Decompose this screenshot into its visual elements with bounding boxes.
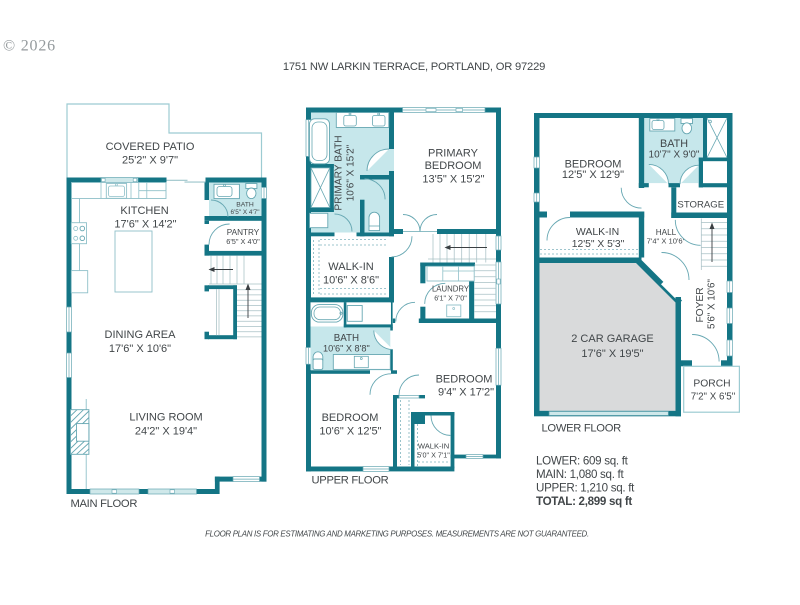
svg-text:BATH: BATH [236,202,254,209]
svg-text:TOTAL: 2,899 sq ft: TOTAL: 2,899 sq ft [536,495,632,508]
svg-text:WALK-IN: WALK-IN [418,442,449,451]
svg-text:10'6" X 8'6": 10'6" X 8'6" [323,275,379,287]
svg-text:LAUNDRY: LAUNDRY [432,285,470,294]
svg-text:12'5" X 5'3": 12'5" X 5'3" [572,239,625,250]
svg-text:FLOOR PLAN IS FOR ESTIMATING A: FLOOR PLAN IS FOR ESTIMATING AND MARKETI… [205,530,589,539]
svg-text:PANTRY: PANTRY [227,228,260,237]
svg-text:FOYER: FOYER [695,287,706,322]
svg-text:MAIN: 1,080 sq. ft: MAIN: 1,080 sq. ft [536,468,624,481]
svg-text:BEDROOM: BEDROOM [425,160,482,172]
svg-text:9'4" X 17'2": 9'4" X 17'2" [438,387,494,399]
svg-text:PORCH: PORCH [693,379,730,390]
svg-text:LOWER FLOOR: LOWER FLOOR [542,423,622,435]
svg-text:© 2026: © 2026 [3,38,56,55]
svg-text:6'5" X 4'0": 6'5" X 4'0" [226,237,260,246]
svg-text:BATH: BATH [334,333,359,344]
svg-text:5'6" X 10'6": 5'6" X 10'6" [707,279,718,329]
svg-text:25'2" X 9'7": 25'2" X 9'7" [122,155,178,167]
svg-text:5'0" X 7'1": 5'0" X 7'1" [417,451,450,460]
svg-text:10'6" X 12'5": 10'6" X 12'5" [319,426,381,438]
svg-text:MAIN FLOOR: MAIN FLOOR [71,498,138,510]
svg-text:PRIMARY: PRIMARY [428,148,479,160]
svg-text:10'6" X 8'8": 10'6" X 8'8" [323,344,370,354]
svg-text:6'5" X 4'7": 6'5" X 4'7" [230,209,259,216]
svg-text:12'5" X 12'9": 12'5" X 12'9" [562,169,624,181]
svg-text:WALK-IN: WALK-IN [576,226,619,238]
svg-text:WALK-IN: WALK-IN [328,261,373,273]
svg-text:PRIMARY BATH: PRIMARY BATH [334,135,345,210]
svg-text:7'4" X 10'6": 7'4" X 10'6" [647,237,686,246]
svg-text:1751 NW LARKIN TERRACE, PORTLA: 1751 NW LARKIN TERRACE, PORTLAND, OR 972… [283,61,545,73]
svg-text:17'6" X 10'6": 17'6" X 10'6" [109,343,171,355]
svg-text:24'2" X 19'4": 24'2" X 19'4" [135,426,197,438]
svg-text:UPPER: 1,210 sq. ft: UPPER: 1,210 sq. ft [536,481,635,494]
svg-text:17'6" X 14'2": 17'6" X 14'2" [114,219,176,231]
svg-text:COVERED PATIO: COVERED PATIO [106,141,195,153]
svg-text:BATH: BATH [660,138,688,150]
svg-text:LIVING ROOM: LIVING ROOM [129,412,202,424]
svg-text:7'2" X 6'5": 7'2" X 6'5" [691,392,736,403]
svg-text:2 CAR GARAGE: 2 CAR GARAGE [571,333,654,345]
svg-text:BEDROOM: BEDROOM [436,374,493,386]
svg-text:13'5" X 15'2": 13'5" X 15'2" [422,174,484,186]
svg-text:DINING AREA: DINING AREA [105,329,177,341]
svg-text:6'1" X 7'0": 6'1" X 7'0" [434,294,467,303]
svg-text:10'7" X 9'0": 10'7" X 9'0" [649,150,700,161]
svg-text:17'6" X 19'5": 17'6" X 19'5" [581,348,643,360]
svg-text:UPPER FLOOR: UPPER FLOOR [312,475,389,487]
svg-text:LOWER: 609 sq. ft: LOWER: 609 sq. ft [536,454,629,467]
svg-text:KITCHEN: KITCHEN [120,205,168,217]
svg-text:10'6" X 15'2": 10'6" X 15'2" [346,144,357,201]
svg-text:STORAGE: STORAGE [677,200,724,211]
svg-text:BEDROOM: BEDROOM [322,412,379,424]
